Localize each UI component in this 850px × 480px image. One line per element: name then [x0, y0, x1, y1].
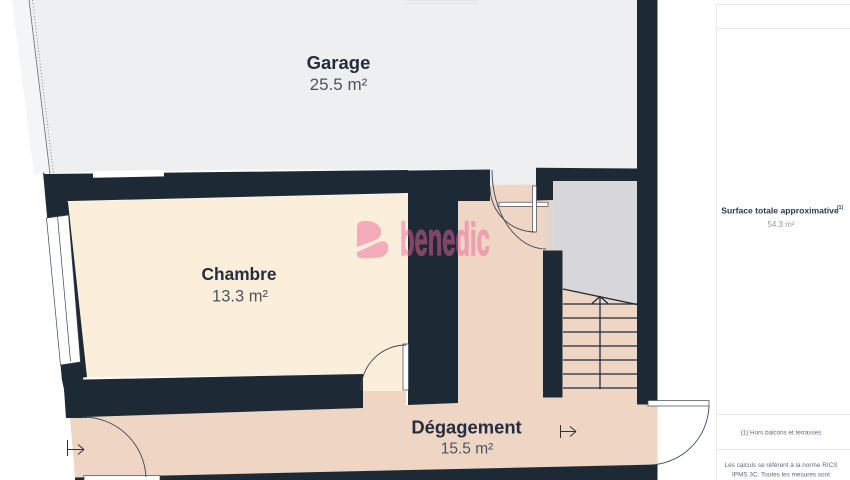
svg-text:13.3 m²: 13.3 m²	[212, 288, 268, 306]
svg-text:(1): (1)	[837, 205, 843, 211]
svg-text:IPMS 3C. Toutes les mesures so: IPMS 3C. Toutes les mesures sont	[732, 472, 830, 479]
svg-text:(1) Hors balcons et terrasses: (1) Hors balcons et terrasses	[741, 430, 822, 437]
svg-text:Chambre: Chambre	[202, 264, 277, 284]
svg-text:54.3 m²: 54.3 m²	[767, 220, 794, 229]
svg-text:15.5 m²: 15.5 m²	[441, 441, 494, 458]
svg-text:Surface totale approximative: Surface totale approximative	[721, 206, 839, 216]
svg-text:25.5 m²: 25.5 m²	[310, 75, 368, 94]
svg-text:Les calculs se réfèrent à la n: Les calculs se réfèrent à la norme RICS	[725, 462, 838, 469]
svg-text:Garage: Garage	[307, 52, 371, 73]
svg-text:benedic: benedic	[400, 214, 490, 266]
svg-text:Dégagement: Dégagement	[411, 417, 521, 438]
